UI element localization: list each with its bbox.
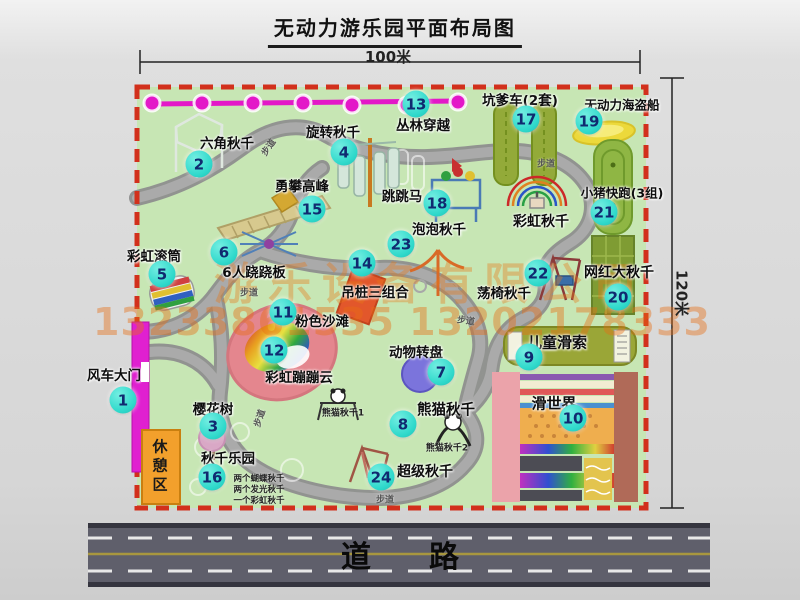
attraction-badge-17: 17 [513, 106, 540, 133]
attraction-badge-14: 14 [349, 250, 376, 277]
attraction-label-2: 六角秋千 [200, 132, 254, 152]
road-label: 道路 [283, 532, 517, 576]
height-dimension-label: 120米 [672, 270, 693, 316]
sub-label-0: 熊猫秋千1 [322, 406, 364, 419]
page-title: 无动力游乐园平面布局图 [268, 12, 522, 48]
attraction-badge-1: 1 [110, 387, 137, 414]
attraction-badge-19: 19 [576, 108, 603, 135]
attraction-label-15: 勇攀高峰 [275, 175, 329, 195]
sub-label-4: 一个彩虹秋千 [233, 494, 284, 506]
path-label-1: 步道 [537, 157, 555, 170]
rest-area-label: 休憩区 [150, 439, 171, 496]
attraction-label-6: 6人跷跷板 [222, 261, 285, 281]
path-label-2: 步道 [240, 286, 258, 299]
attraction-badge-15: 15 [299, 196, 326, 223]
labels-overlay: 无动力游乐园平面布局图 100米 120米 休憩区 道路 风车大门1六角秋千2樱… [0, 0, 800, 600]
attraction-label-14: 吊桩三组合 [341, 281, 409, 301]
attraction-badge-12: 12 [261, 337, 288, 364]
attraction-badge-13: 13 [403, 91, 430, 118]
attraction-label-24: 超级秋千 [397, 461, 453, 481]
attraction-badge-3: 3 [200, 413, 227, 440]
attraction-label-彩虹秋千: 彩虹秋千 [513, 211, 569, 231]
attraction-badge-24: 24 [368, 464, 395, 491]
attraction-badge-5: 5 [149, 261, 176, 288]
attraction-badge-9: 9 [516, 344, 543, 371]
attraction-label-7: 动物转盘 [389, 341, 443, 361]
width-dimension-label: 100米 [365, 46, 411, 67]
attraction-badge-2: 2 [186, 151, 213, 178]
attraction-label-11: 粉色沙滩 [295, 310, 349, 330]
attraction-badge-10: 10 [560, 405, 587, 432]
attraction-label-4: 旋转秋千 [306, 121, 360, 141]
path-label-3: 步道 [456, 312, 476, 327]
playground-map: 游乐设备有限公司 13233861535 13202178333 无动力游乐园平… [0, 0, 800, 600]
attraction-label-23: 泡泡秋千 [412, 218, 466, 238]
attraction-badge-21: 21 [591, 199, 618, 226]
attraction-label-22: 荡椅秋千 [477, 282, 531, 302]
attraction-label-18: 跳跳马 [382, 185, 423, 205]
attraction-label-13: 丛林穿越 [396, 114, 450, 134]
attraction-badge-11: 11 [270, 299, 297, 326]
attraction-badge-6: 6 [211, 239, 238, 266]
attraction-badge-18: 18 [424, 190, 451, 217]
attraction-label-21: 小猪快跑(3组) [581, 183, 664, 202]
attraction-badge-4: 4 [331, 139, 358, 166]
attraction-label-8: 熊猫秋千 [417, 399, 475, 420]
attraction-badge-8: 8 [390, 411, 417, 438]
attraction-label-12: 彩虹蹦蹦云 [265, 366, 333, 386]
attraction-label-20: 网红大秋千 [584, 262, 654, 282]
path-label-0: 步道 [258, 136, 279, 158]
attraction-badge-22: 22 [525, 260, 552, 287]
attraction-badge-16: 16 [199, 464, 226, 491]
path-label-4: 步道 [250, 407, 268, 428]
attraction-badge-20: 20 [605, 284, 632, 311]
path-label-5: 步道 [376, 493, 394, 506]
attraction-badge-7: 7 [428, 359, 455, 386]
sub-label-1: 熊猫秋千2 [426, 441, 468, 454]
attraction-badge-23: 23 [388, 231, 415, 258]
attraction-label-1: 风车大门 [87, 364, 141, 384]
